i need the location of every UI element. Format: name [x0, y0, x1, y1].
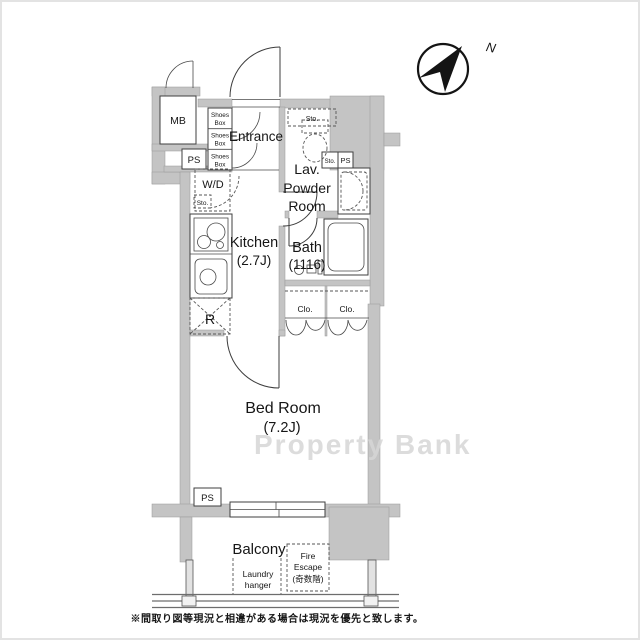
shoes-box-2-line1: Shoes [211, 133, 229, 140]
bedroom-window [230, 502, 325, 517]
pipe-space-top-right-label: PS [340, 156, 350, 165]
entrance-door [230, 47, 280, 97]
floor-plan-page: MB PS Shoes Box Shoes Box Shoes Box Entr… [0, 0, 640, 640]
bath-label-line2: (1116) [288, 257, 325, 272]
fire-escape-label-line1: Fire [301, 551, 316, 561]
laundry-hanger-label-line2: hanger [245, 580, 272, 590]
washbasin-unit [338, 168, 370, 214]
washer-dryer-label: W/D [202, 179, 223, 191]
storage-lavatory-label: Sto. [306, 116, 319, 123]
disclaimer-text: ※間取り図等現況と相違がある場合は現況を優先と致します。 [131, 612, 424, 625]
storage-kitchen-label: Sto. [197, 200, 209, 207]
fire-escape-label-line2: Escape [294, 562, 323, 572]
watermark: Property Bank [254, 429, 471, 460]
kitchen-label-line1: Kitchen [230, 235, 278, 251]
shoes-box-2-line2: Box [214, 141, 226, 148]
compass-north-label: N [485, 39, 498, 56]
meter-box-label: MB [170, 115, 186, 127]
kitchen-label-line2: (2.7J) [237, 253, 272, 268]
bedroom-label-line1: Bed Room [245, 400, 321, 417]
shoes-box-1-line2: Box [214, 120, 226, 127]
pipe-space-bedroom-label: PS [201, 493, 214, 504]
labels: MB PS Shoes Box Shoes Box Shoes Box Entr… [170, 112, 354, 590]
lavatory-label-line2: Powder [283, 180, 331, 196]
closet-left-label: Clo. [297, 304, 312, 314]
lavatory-label-line1: Lav. [294, 161, 319, 177]
pipe-space-entrance-label: PS [188, 155, 201, 166]
closet-right-label: Clo. [339, 304, 354, 314]
shoes-box-1-line1: Shoes [211, 112, 229, 119]
meter-box-door [166, 61, 193, 88]
balcony-structure [152, 560, 399, 608]
compass-north-arrow-icon [419, 46, 462, 92]
fire-escape-label-line3: (奇数階) [292, 574, 323, 584]
shoes-box-3-line1: Shoes [211, 153, 229, 160]
lavatory-label-line3: Room [288, 198, 325, 214]
bathtub [324, 219, 368, 275]
kitchen-counter [190, 214, 232, 298]
storage-top-right-label: Sto. [325, 159, 336, 165]
shoes-box-3-line2: Box [214, 161, 226, 168]
compass: N [418, 39, 498, 94]
laundry-hanger-label-line1: Laundry [243, 569, 274, 579]
refrigerator-label: R [205, 311, 215, 327]
balcony-label: Balcony [232, 541, 286, 558]
floor-plan: MB PS Shoes Box Shoes Box Shoes Box Entr… [2, 2, 638, 638]
bath-label-line1: Bath [292, 240, 322, 256]
entrance-label: Entrance [229, 129, 283, 144]
bedroom-door [227, 336, 279, 388]
